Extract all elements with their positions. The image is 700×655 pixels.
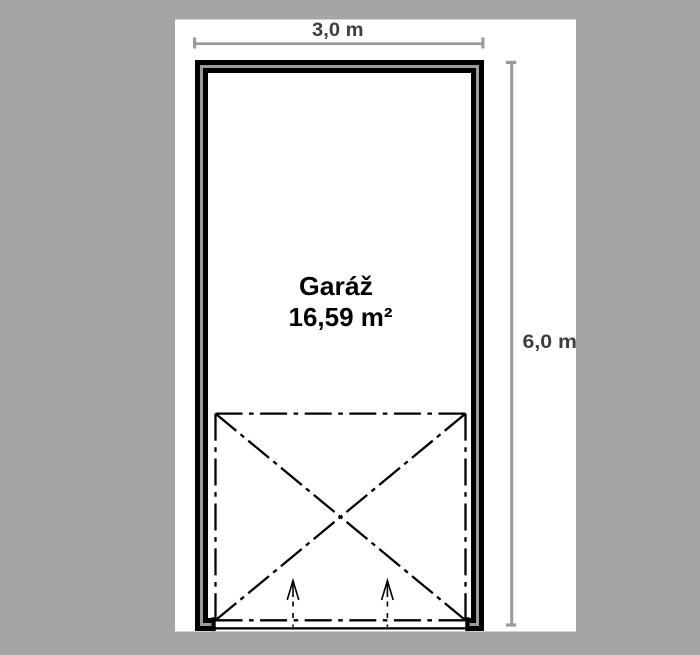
svg-text:6,0 m: 6,0 m [523, 332, 578, 353]
svg-text:Garáž: Garáž [299, 271, 373, 301]
svg-text:16,59 m²: 16,59 m² [289, 302, 393, 332]
svg-text:3,0 m: 3,0 m [312, 20, 364, 41]
